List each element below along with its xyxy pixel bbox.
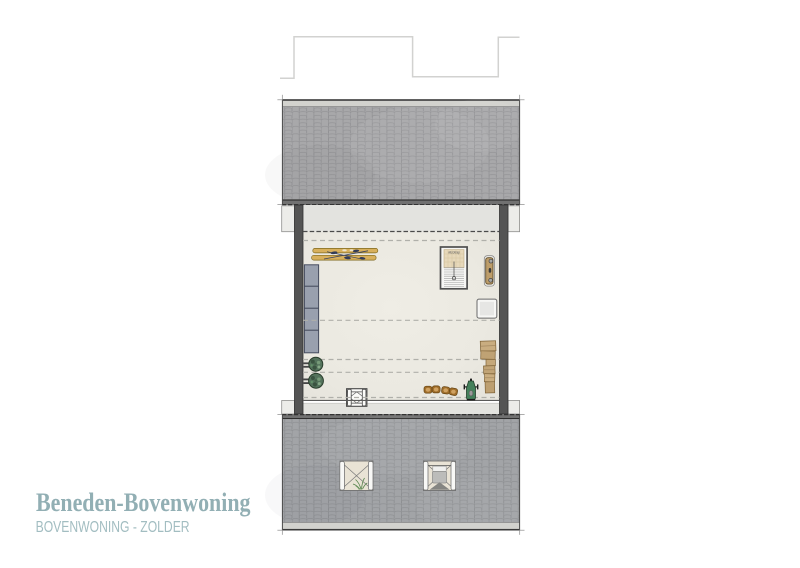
svg-text:vlizotrap: vlizotrap [448,251,460,255]
svg-text:BOVENWONING - ZOLDER: BOVENWONING - ZOLDER [36,519,190,536]
svg-text:Beneden-Bovenwoning: Beneden-Bovenwoning [36,487,251,517]
